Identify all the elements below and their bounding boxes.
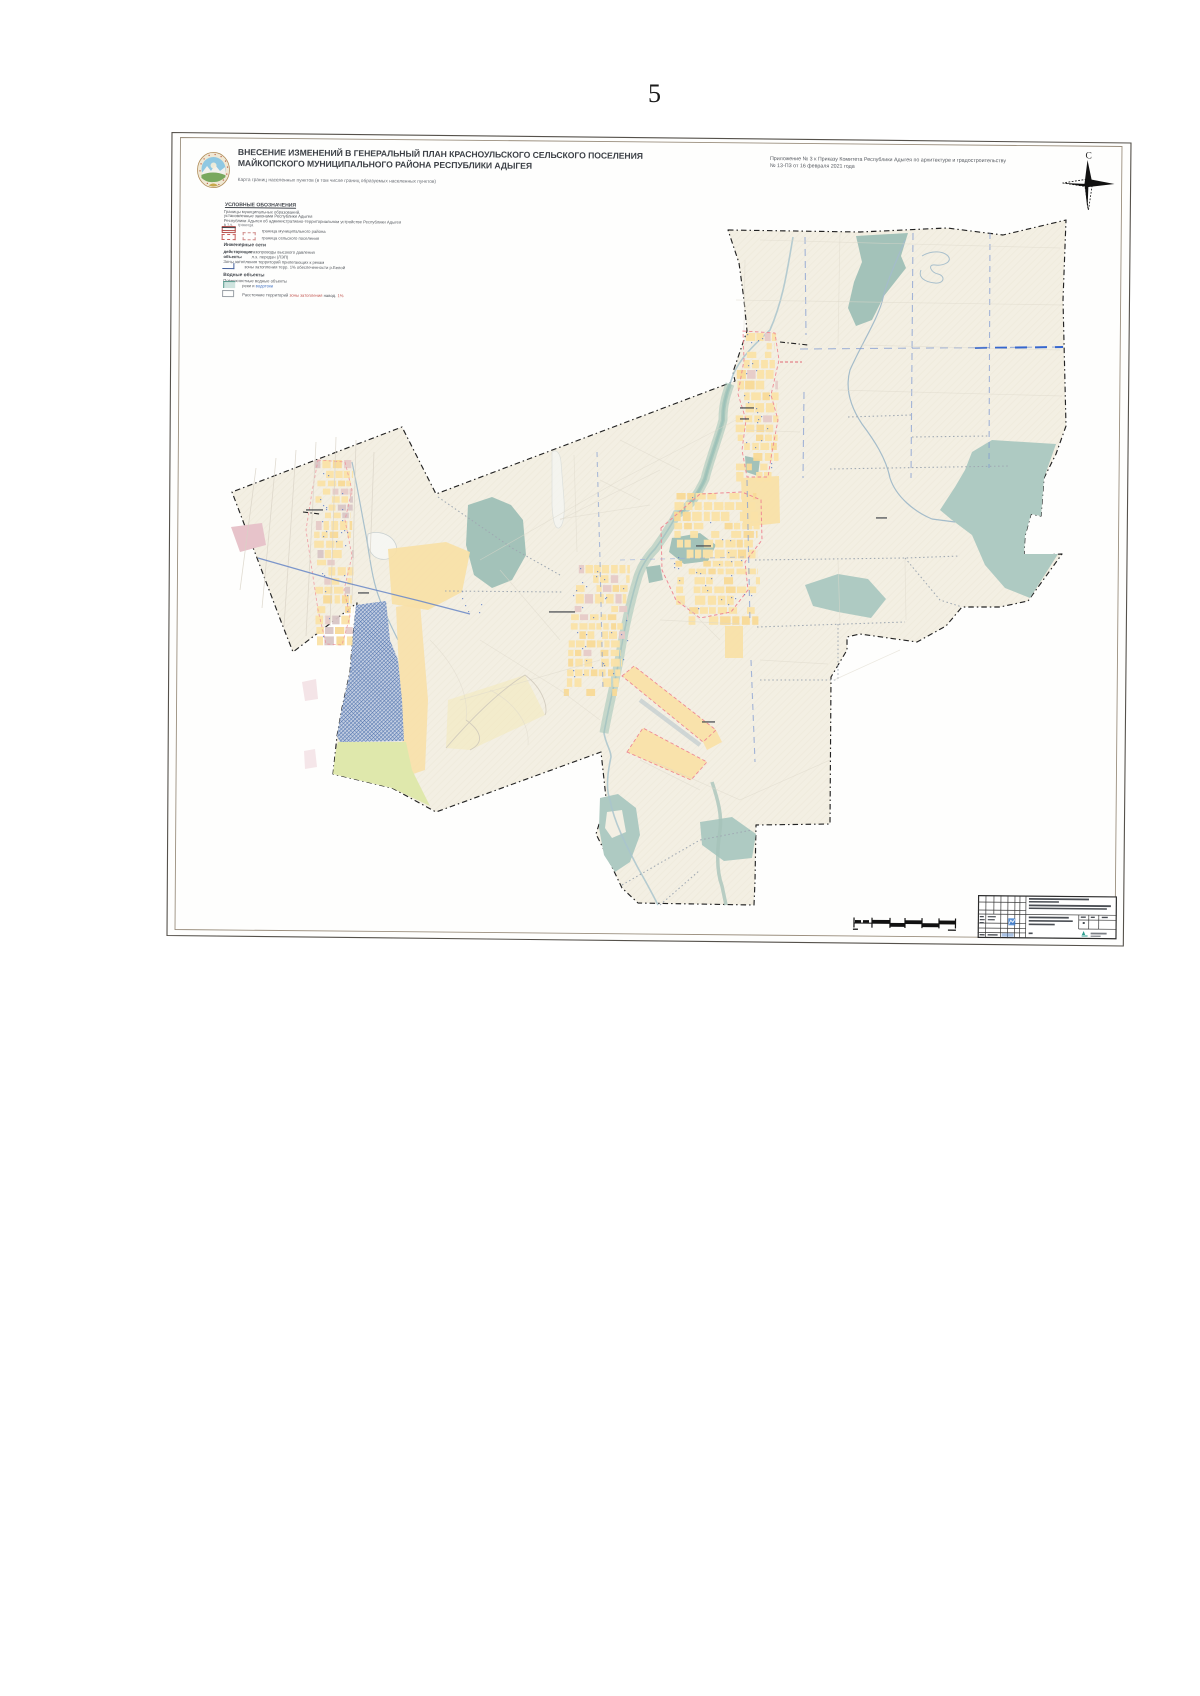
svg-text:C: C [1086, 152, 1092, 162]
